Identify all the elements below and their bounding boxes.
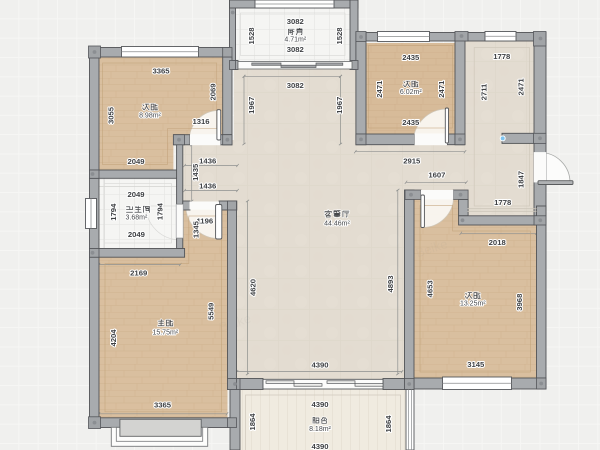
svg-text:1436: 1436 [199,157,216,166]
svg-text:1435: 1435 [191,163,200,181]
svg-text:3055: 3055 [106,106,115,124]
svg-text:2069: 2069 [208,83,217,100]
svg-text:4204: 4204 [109,329,118,347]
svg-text:1778: 1778 [494,198,512,207]
svg-text:1847: 1847 [516,171,525,188]
svg-text:2711: 2711 [480,83,489,100]
svg-text:2471: 2471 [517,78,526,96]
svg-text:1967: 1967 [247,97,256,114]
svg-text:1864: 1864 [248,413,257,431]
svg-text:3082: 3082 [287,17,304,26]
svg-text:2018: 2018 [489,238,507,247]
svg-text:8.98m²: 8.98m² [139,113,161,120]
svg-text:5549: 5549 [207,303,216,320]
svg-text:8.18m²: 8.18m² [309,426,331,433]
svg-text:4893: 4893 [386,275,395,292]
svg-text:3082: 3082 [287,45,304,54]
svg-text:6.02m²: 6.02m² [400,89,422,96]
svg-text:2435: 2435 [402,118,420,127]
svg-text:1528: 1528 [335,27,344,45]
svg-text:13.25m²: 13.25m² [460,301,486,308]
svg-text:2049: 2049 [128,230,145,239]
svg-text:1794: 1794 [156,202,165,220]
svg-text:1967: 1967 [335,97,344,114]
svg-text:4390: 4390 [311,400,328,409]
svg-text:2471: 2471 [437,80,446,98]
svg-text:3968: 3968 [515,293,524,311]
svg-text:15.75m²: 15.75m² [152,330,178,337]
svg-text:3365: 3365 [152,66,170,75]
svg-text:2435: 2435 [402,53,420,62]
svg-text:2049: 2049 [127,190,144,199]
svg-text:4653: 4653 [426,280,435,297]
svg-text:1528: 1528 [247,27,256,45]
svg-text:4.71m²: 4.71m² [284,37,306,44]
svg-text:2049: 2049 [127,157,144,166]
svg-text:3.68m²: 3.68m² [126,215,148,222]
svg-text:1316: 1316 [192,117,209,126]
svg-text:3365: 3365 [154,400,172,409]
svg-text:1778: 1778 [493,52,511,61]
svg-text:4390: 4390 [311,442,328,450]
svg-text:3145: 3145 [467,360,485,369]
svg-text:1794: 1794 [109,203,118,221]
svg-text:1345: 1345 [191,220,200,238]
svg-text:44.46m²: 44.46m² [324,221,350,228]
svg-text:4620: 4620 [248,279,257,296]
svg-text:1436: 1436 [199,182,216,191]
svg-text:2169: 2169 [130,269,147,278]
svg-text:2915: 2915 [403,157,421,166]
svg-text:1864: 1864 [384,415,393,433]
svg-text:3082: 3082 [287,81,304,90]
svg-text:1607: 1607 [428,170,445,179]
svg-text:2471: 2471 [375,80,384,98]
svg-text:4390: 4390 [311,361,328,370]
